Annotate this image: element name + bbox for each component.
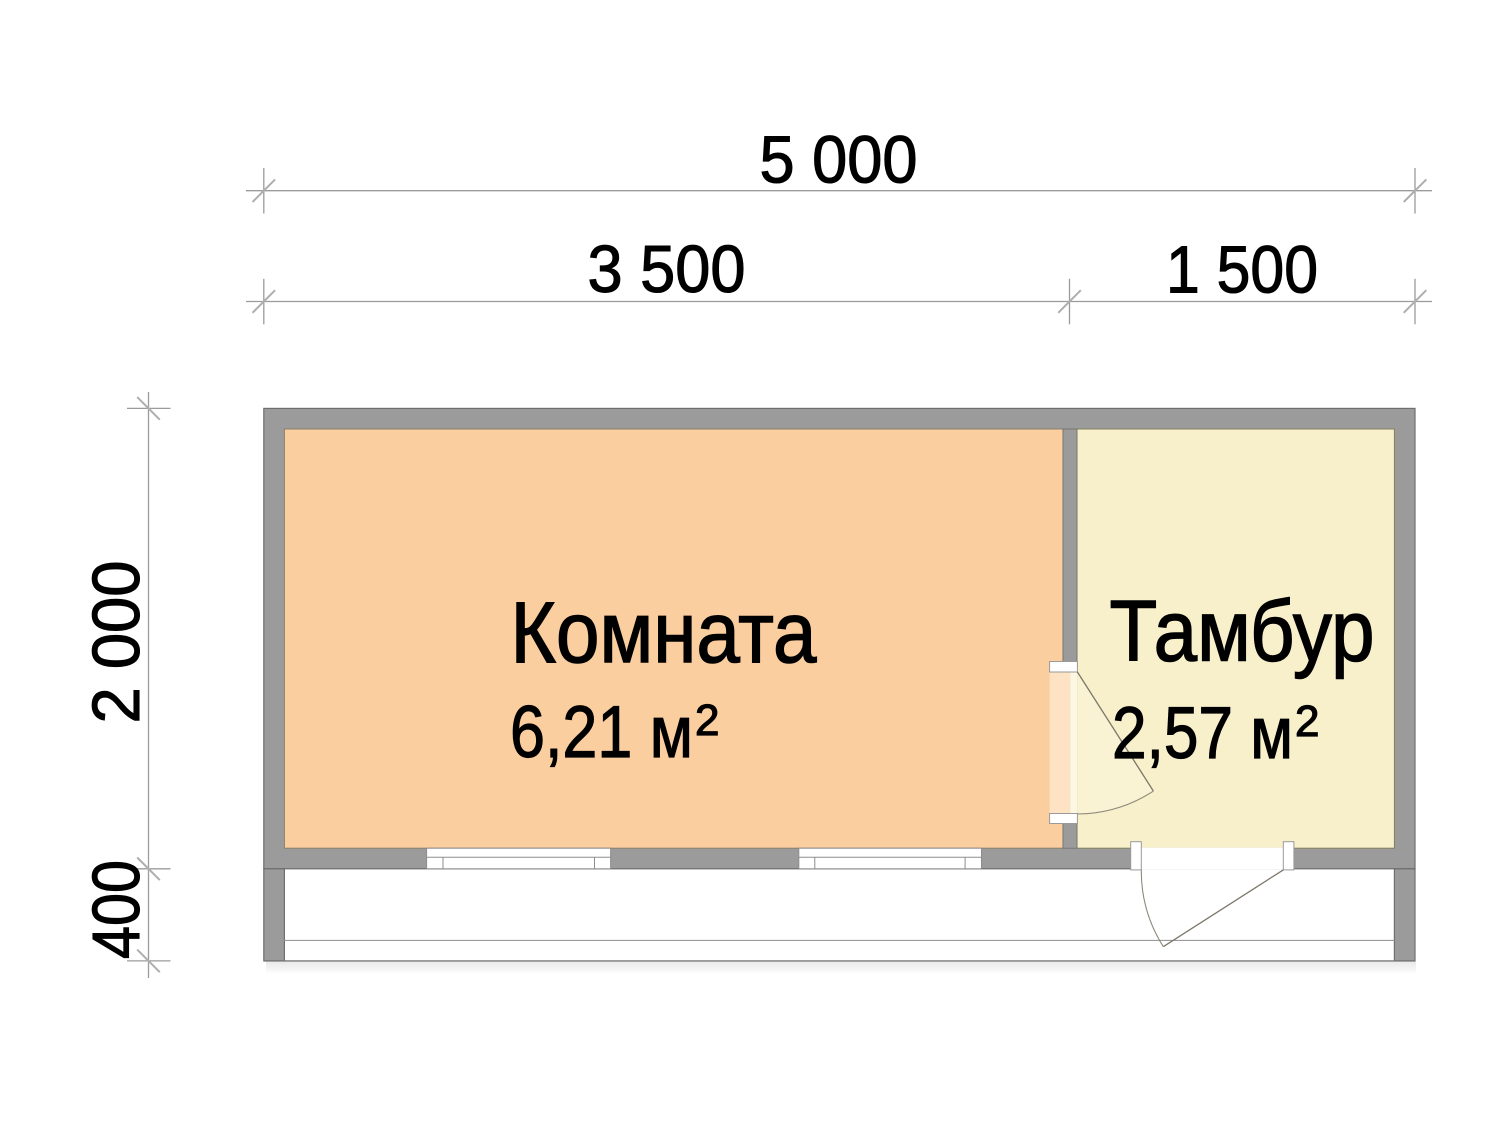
svg-text:2,57 м2: 2,57 м2 [1112, 693, 1319, 774]
svg-text:3 500: 3 500 [588, 232, 746, 307]
svg-text:5 000: 5 000 [760, 123, 918, 198]
svg-text:Комната: Комната [511, 585, 817, 681]
svg-text:6,21 м2: 6,21 м2 [510, 692, 719, 773]
svg-text:2 000: 2 000 [79, 561, 154, 724]
svg-text:1 500: 1 500 [1166, 233, 1318, 308]
svg-text:Тамбур: Тамбур [1110, 584, 1375, 680]
svg-text:400: 400 [79, 860, 154, 959]
